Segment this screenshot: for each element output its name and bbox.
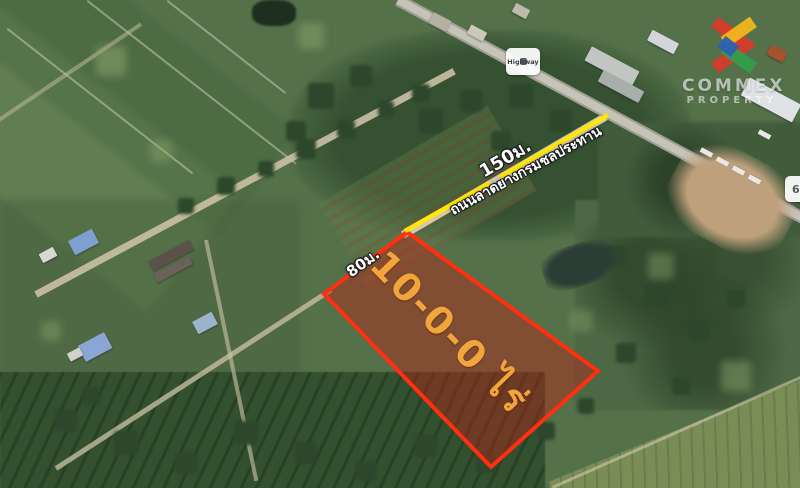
watermark-tagline-text: PROPERTY bbox=[682, 95, 782, 106]
watermark-brand-text: COMMEX bbox=[682, 76, 782, 96]
highway-badge-label: Highway bbox=[507, 58, 538, 66]
route-number-label: 6 bbox=[792, 183, 800, 196]
highway-place-badge[interactable]: Highway bbox=[506, 48, 540, 75]
satellite-map: 150ม. ถนนลาดยางกรมชลประทาน 80ม. 10-0-0 ไ… bbox=[0, 0, 800, 488]
commex-x-icon bbox=[706, 16, 762, 74]
watermark-logo: COMMEX PROPERTY bbox=[682, 16, 782, 112]
route-number-badge[interactable]: 6 bbox=[785, 176, 800, 202]
